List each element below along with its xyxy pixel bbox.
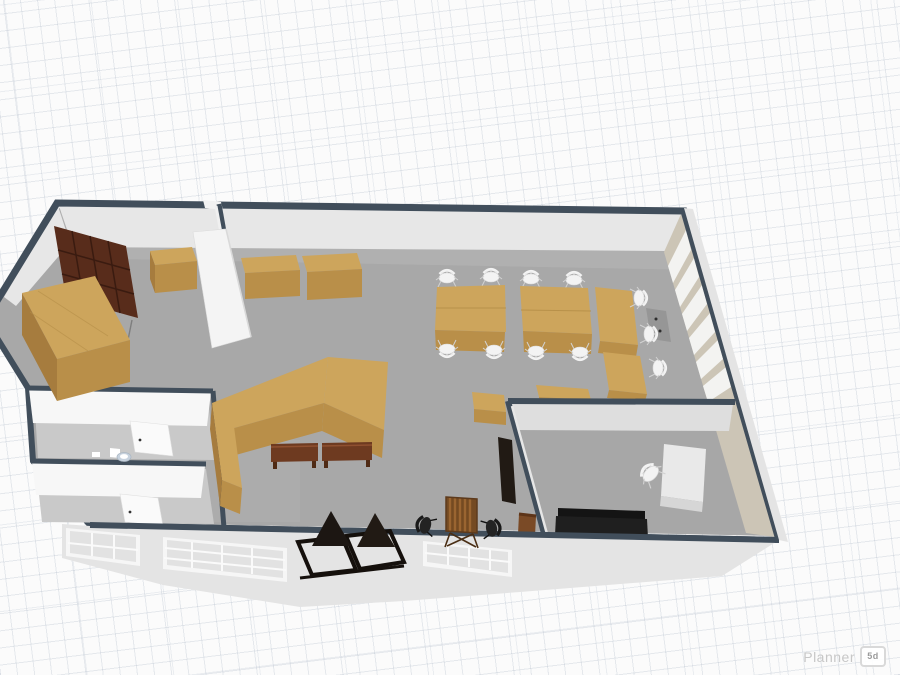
bathroom-door-1[interactable] (130, 421, 173, 456)
bathrooms[interactable] (28, 388, 224, 528)
wall-table-1[interactable] (595, 287, 638, 357)
planner5d-watermark: Planner 5d (803, 646, 886, 667)
watermark-brand-text: Planner (803, 649, 855, 665)
office-desk[interactable] (660, 444, 706, 512)
planner5d-3d-floorplan-canvas[interactable]: Planner 5d (0, 0, 900, 675)
storage-cabinet[interactable] (150, 247, 197, 293)
floorplan-scene (0, 0, 900, 675)
wall-cabinet-a[interactable] (241, 255, 300, 299)
wall-table-2[interactable] (603, 352, 647, 401)
sink[interactable] (92, 452, 100, 457)
bathroom-door-2[interactable] (120, 494, 163, 526)
side-table-1[interactable] (472, 392, 506, 425)
office-room[interactable] (498, 401, 745, 538)
planner5d-house-badge-icon: 5d (860, 646, 886, 667)
wall-cabinet-b[interactable] (302, 253, 362, 300)
south-wall-exterior[interactable] (62, 524, 779, 607)
